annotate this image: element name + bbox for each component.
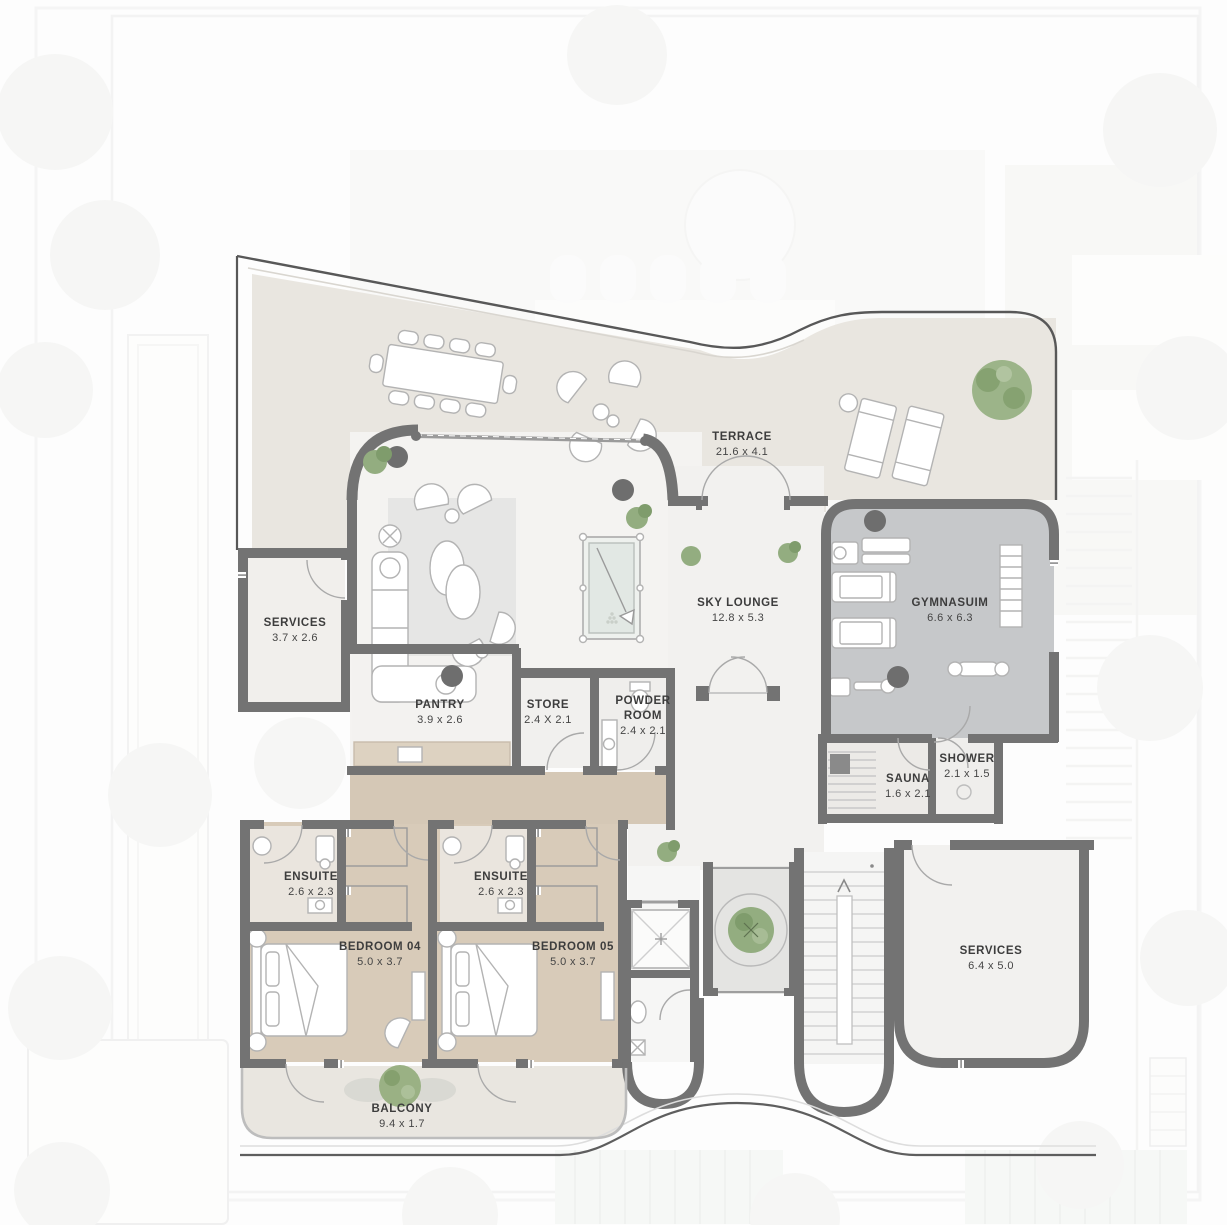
floorplan-drawing <box>0 0 1227 1225</box>
bed-05 <box>438 929 537 1051</box>
floorplan-canvas: TERRACE 21.6 x 4.1 SKY LOUNGE 12.8 x 5.3… <box>0 0 1227 1225</box>
floors <box>242 274 1085 1138</box>
pool-table <box>580 534 644 643</box>
dresser-04 <box>412 972 425 1020</box>
courtyard-tree <box>728 907 774 953</box>
services-left-floor <box>245 556 345 708</box>
elevator <box>632 910 690 968</box>
dresser-05 <box>601 972 614 1020</box>
bed-04 <box>248 929 347 1051</box>
terrace-tree <box>972 360 1032 420</box>
services-right-floor <box>898 845 1085 1064</box>
pantry-counter <box>354 742 510 766</box>
balcony-floor <box>242 1066 626 1138</box>
